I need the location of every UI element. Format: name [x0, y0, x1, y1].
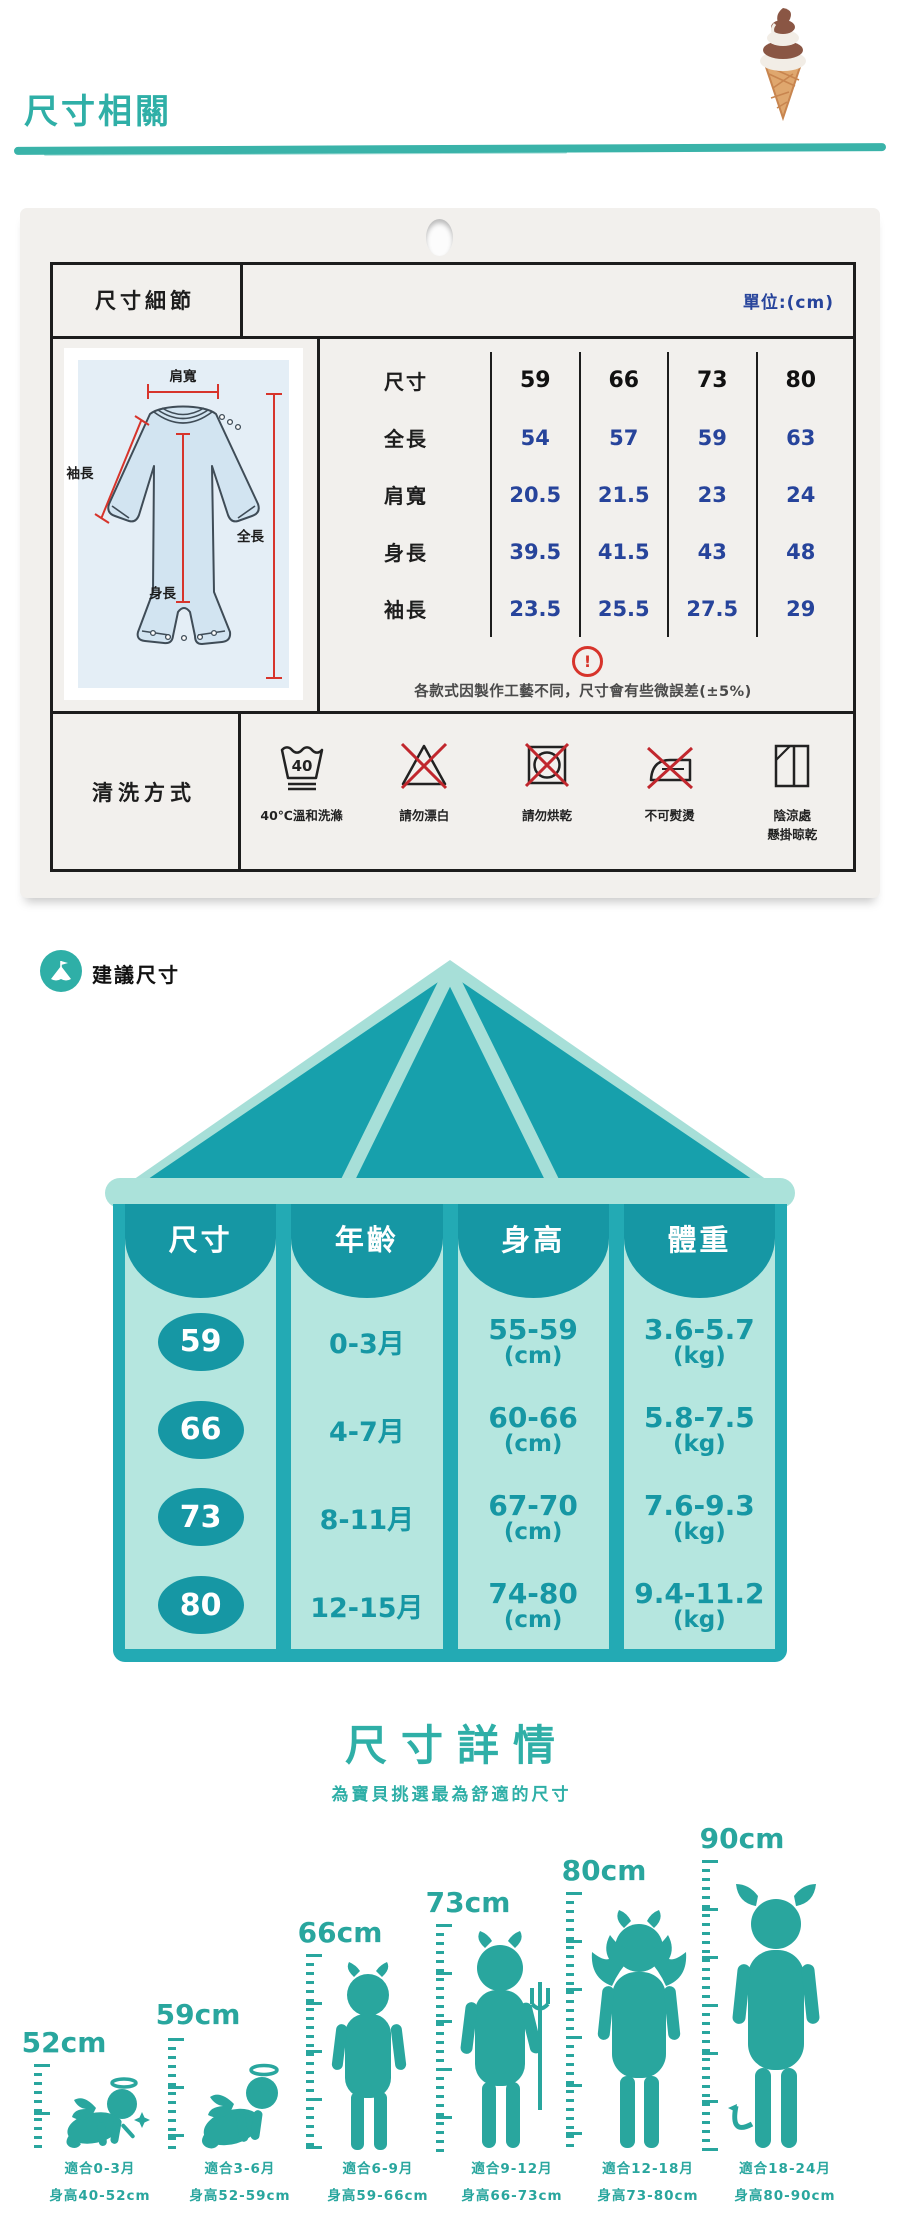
body-cell-divider — [317, 336, 320, 713]
column-header-age: 年齡 — [291, 1204, 442, 1298]
size-pill: 66 — [158, 1401, 244, 1459]
size-pill: 59 — [158, 1313, 244, 1371]
column-header-size: 尺寸 — [125, 1204, 276, 1298]
hang-dry-in-shade-icon — [765, 738, 819, 794]
crawling-baby-0-3m-silhouette — [56, 2074, 162, 2152]
wash-item: 40 40℃溫和洗滌 — [243, 738, 361, 825]
ruler-icon — [306, 1954, 322, 2152]
unit-label: 單位:(cm) — [500, 262, 834, 338]
column-header-height: 身高 — [458, 1204, 609, 1298]
warning-icon: ! — [572, 646, 603, 677]
page: 尺寸相關 尺寸細節 單位:(cm) — [0, 0, 900, 2223]
hanger-hole — [426, 219, 453, 256]
height-label: 66cm — [275, 1916, 405, 1949]
size-pill: 80 — [158, 1576, 244, 1634]
svg-text:40: 40 — [291, 757, 312, 775]
wash-item: 不可熨燙 — [611, 738, 729, 825]
page-title: 尺寸相關 — [24, 84, 172, 133]
column-weight: 體重 3.6-5.7(kg) 5.8-7.5(kg) 7.6-9.3(kg) 9… — [624, 1204, 775, 1649]
ruler-icon — [566, 1892, 582, 2152]
height-label: 73cm — [403, 1886, 533, 1919]
big-kid-18-24m-silhouette — [722, 1880, 830, 2152]
wash-care-icons: 40 40℃溫和洗滌 請勿漂白 請勿烘乾 — [238, 712, 856, 872]
spec-row-shoulder: 肩寬 20.5 21.5 23 24 — [322, 466, 844, 523]
header-cell-divider — [240, 262, 243, 338]
full-length-label: 全長 — [236, 528, 264, 545]
spec-row-sleeve: 袖長 23.5 25.5 27.5 29 — [322, 580, 844, 637]
ruler-icon — [702, 1860, 718, 2152]
wash-item: 陰涼處 懸掛晾乾 — [733, 738, 851, 845]
spec-row-body-length: 身長 39.5 41.5 43 48 — [322, 523, 844, 580]
wash-item: 請勿漂白 — [365, 738, 483, 825]
spec-table: 尺寸 59 66 73 80 全長 54 57 59 63 肩寬 20.5 21… — [322, 352, 844, 637]
tent-badge-icon — [48, 958, 74, 984]
suggested-size-table: 尺寸 59 66 73 80 年齡 0-3月 4-7月 8-11月 12-15月… — [113, 1204, 787, 1662]
body-length-label: 身長 — [149, 585, 176, 602]
no-iron-icon — [643, 738, 697, 794]
wash-40c-icon: 40 — [275, 738, 329, 794]
range-caption: 身高80-90cm — [697, 2184, 873, 2204]
spec-row-size: 尺寸 59 66 73 80 — [322, 352, 844, 409]
wash-item: 請勿烘乾 — [488, 738, 606, 825]
toddler-with-trident-9-12m-silhouette — [458, 1930, 552, 2152]
brush-underline — [14, 143, 886, 155]
size-details-title: 尺寸詳情 — [0, 1712, 900, 1773]
wash-method-heading: 清洗方式 — [50, 712, 238, 872]
tolerance-note: 各款式因製作工藝不同，尺寸會有些微誤差(±5%) — [322, 680, 844, 701]
column-height: 身高 55-59(cm) 60-66(cm) 67-70(cm) 74-80(c… — [458, 1204, 609, 1649]
tent-canopy-graphic — [105, 958, 795, 1208]
column-age: 年齡 0-3月 4-7月 8-11月 12-15月 — [291, 1204, 442, 1649]
column-header-weight: 體重 — [624, 1204, 775, 1298]
height-label: 52cm — [0, 2026, 129, 2059]
ruler-icon — [168, 2038, 184, 2152]
ruler-icon — [436, 1924, 452, 2152]
size-details-subtitle: 為寶貝挑選最為舒適的尺寸 — [0, 1780, 900, 1805]
ruler-icon — [34, 2064, 50, 2152]
height-label: 90cm — [677, 1822, 807, 1855]
column-size: 尺寸 59 66 73 80 — [125, 1204, 276, 1649]
no-tumble-dry-icon — [520, 738, 574, 794]
romper-measure-diagram: 肩寬 袖長 身長 全長 — [50, 336, 317, 712]
height-label: 80cm — [539, 1854, 669, 1887]
size-detail-heading: 尺寸細節 — [50, 262, 240, 338]
spec-row-full-length: 全長 54 57 59 63 — [322, 409, 844, 466]
suggested-size-badge — [40, 950, 82, 992]
winged-toddler-12-18m-silhouette — [588, 1906, 690, 2152]
fit-caption: 適合18-24月 — [697, 2157, 873, 2177]
ice-cream-image — [737, 4, 829, 122]
sleeve-length-label: 袖長 — [67, 465, 94, 482]
size-pill: 73 — [158, 1488, 244, 1546]
no-bleach-icon — [397, 738, 451, 794]
height-label: 59cm — [133, 1998, 263, 2031]
standing-toddler-6-9m-silhouette — [330, 1962, 408, 2152]
crawling-baby-3-6m-silhouette — [190, 2060, 292, 2152]
shoulder-width-label: 肩寬 — [170, 368, 197, 385]
